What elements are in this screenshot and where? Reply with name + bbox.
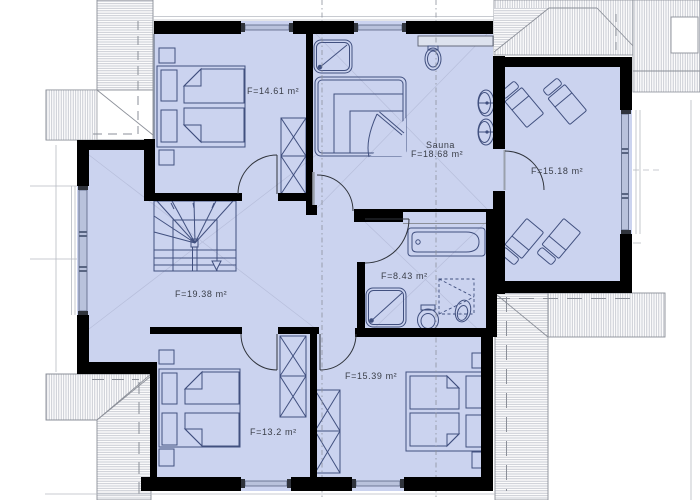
svg-text:F=14.61 m²: F=14.61 m²	[247, 86, 299, 96]
svg-text:F=8.43 m²: F=8.43 m²	[381, 271, 428, 281]
svg-text:F=15.18 m²: F=15.18 m²	[531, 166, 583, 176]
svg-text:F=19.38 m²: F=19.38 m²	[175, 289, 227, 299]
svg-text:F=15.39 m²: F=15.39 m²	[345, 371, 397, 381]
svg-text:F=13.2 m²: F=13.2 m²	[250, 427, 297, 437]
svg-text:F=18.68 m²: F=18.68 m²	[411, 149, 463, 159]
